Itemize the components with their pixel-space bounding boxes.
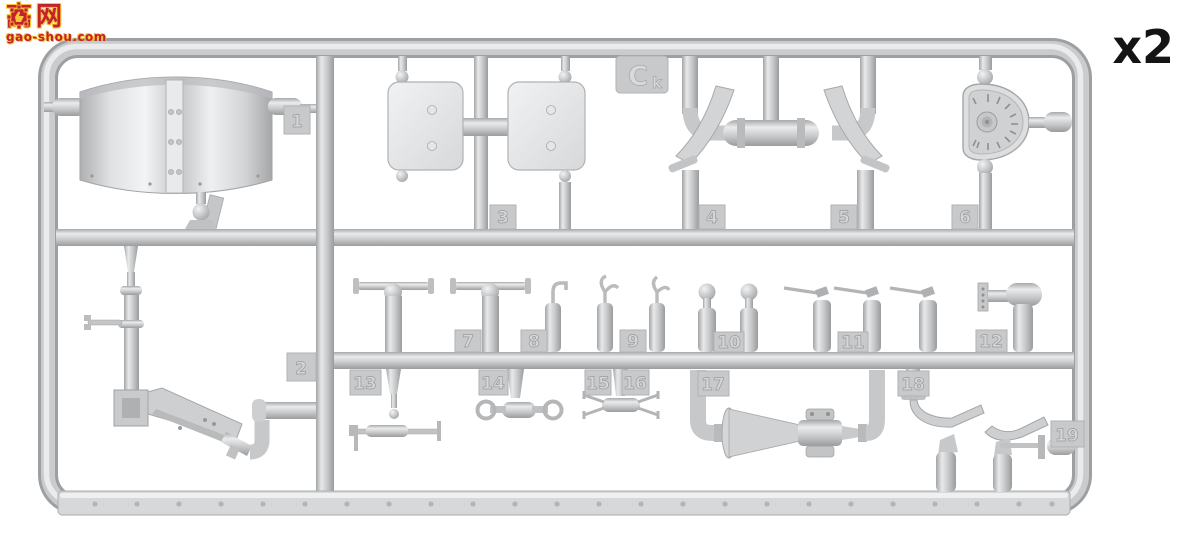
gate-letter-sub: k <box>652 74 663 92</box>
part-8-9-hook-cylinders <box>545 276 669 352</box>
svg-text:8: 8 <box>528 332 540 352</box>
svg-text:11: 11 <box>841 333 865 353</box>
part-tag-17: 17 <box>698 371 729 396</box>
svg-text:19: 19 <box>1055 426 1079 446</box>
part-tag-15: 15 <box>585 370 611 395</box>
part-tag-18: 18 <box>898 371 929 396</box>
part-tag-16: 16 <box>622 370 649 395</box>
svg-text:9: 9 <box>627 332 639 352</box>
watermark-row: 高 网 <box>6 4 107 30</box>
watermark-char-2: 网 <box>36 4 62 30</box>
part-tag-7: 7 <box>455 330 481 352</box>
runner-horizontal-middle <box>334 352 1074 369</box>
watermark-domain: gao-shou.com <box>6 31 107 43</box>
runner-vertical-main <box>316 56 334 493</box>
svg-text:3: 3 <box>497 208 509 228</box>
svg-text:15: 15 <box>586 374 610 394</box>
svg-text:2: 2 <box>295 359 307 379</box>
svg-text:4: 4 <box>706 208 718 228</box>
svg-text:13: 13 <box>353 374 377 394</box>
part-7-t-handles <box>353 278 531 352</box>
svg-text:5: 5 <box>838 208 850 228</box>
part-3-panels <box>388 56 585 229</box>
part-tag-11: 11 <box>838 332 868 353</box>
part-2-mount-assembly <box>84 246 316 460</box>
part-tag-13: 13 <box>350 370 381 395</box>
svg-text:7: 7 <box>462 332 474 352</box>
svg-text:10: 10 <box>717 333 741 353</box>
part-tag-19: 19 <box>1051 421 1084 447</box>
svg-text:16: 16 <box>623 374 647 394</box>
part-tag-14: 14 <box>479 370 508 395</box>
part-1-cowling-drum <box>44 77 316 229</box>
svg-text:14: 14 <box>481 374 505 394</box>
part-tag-12: 12 <box>976 330 1007 352</box>
gate-letter-main: C <box>628 61 648 92</box>
part-tag-9: 9 <box>620 330 646 352</box>
gate-letter-tag: C k <box>616 56 668 93</box>
part-4-5-s-struts <box>668 56 891 229</box>
part-tag-3: 3 <box>490 205 516 229</box>
part-6-dial-disc <box>963 56 1072 229</box>
svg-text:17: 17 <box>701 375 725 395</box>
runner-bottom-bar <box>58 491 1070 515</box>
part-tag-8: 8 <box>521 330 547 352</box>
part-tag-10: 10 <box>714 332 744 353</box>
part-tag-5: 5 <box>831 205 857 229</box>
part-tag-1: 1 <box>284 106 310 134</box>
quantity-label: x2 <box>1112 20 1174 74</box>
part-tag-2: 2 <box>287 353 316 381</box>
sprue-frame: C k 1 2 3 4 5 6 7 8 9 10 <box>0 0 1190 537</box>
runner-horizontal-upper <box>56 229 1074 246</box>
svg-text:12: 12 <box>979 332 1003 352</box>
part-tag-4: 4 <box>699 205 725 229</box>
sprue-photo: 高 网 gao-shou.com <box>0 0 1190 537</box>
svg-text:6: 6 <box>959 208 971 228</box>
watermark-logo: 高 网 gao-shou.com <box>6 4 107 43</box>
svg-text:1: 1 <box>291 112 303 132</box>
part-tag-6: 6 <box>952 205 978 229</box>
svg-text:18: 18 <box>901 375 925 395</box>
